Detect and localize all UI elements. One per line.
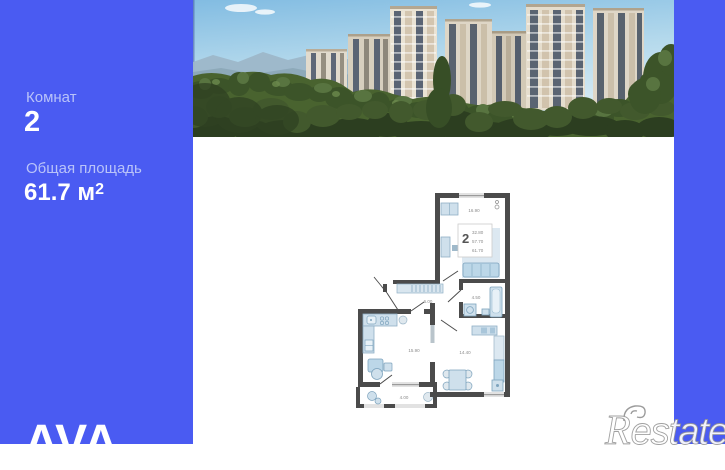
svg-text:32.80: 32.80 xyxy=(472,230,484,235)
svg-text:2: 2 xyxy=(462,231,469,246)
svg-text:16.90: 16.90 xyxy=(468,208,480,213)
svg-text:15.90: 15.90 xyxy=(408,348,420,353)
svg-text:14.40: 14.40 xyxy=(459,350,471,355)
svg-text:57.70: 57.70 xyxy=(472,239,484,244)
svg-text:4.50: 4.50 xyxy=(472,295,481,300)
svg-text:4.00: 4.00 xyxy=(400,395,409,400)
svg-text:61.70: 61.70 xyxy=(472,248,484,253)
